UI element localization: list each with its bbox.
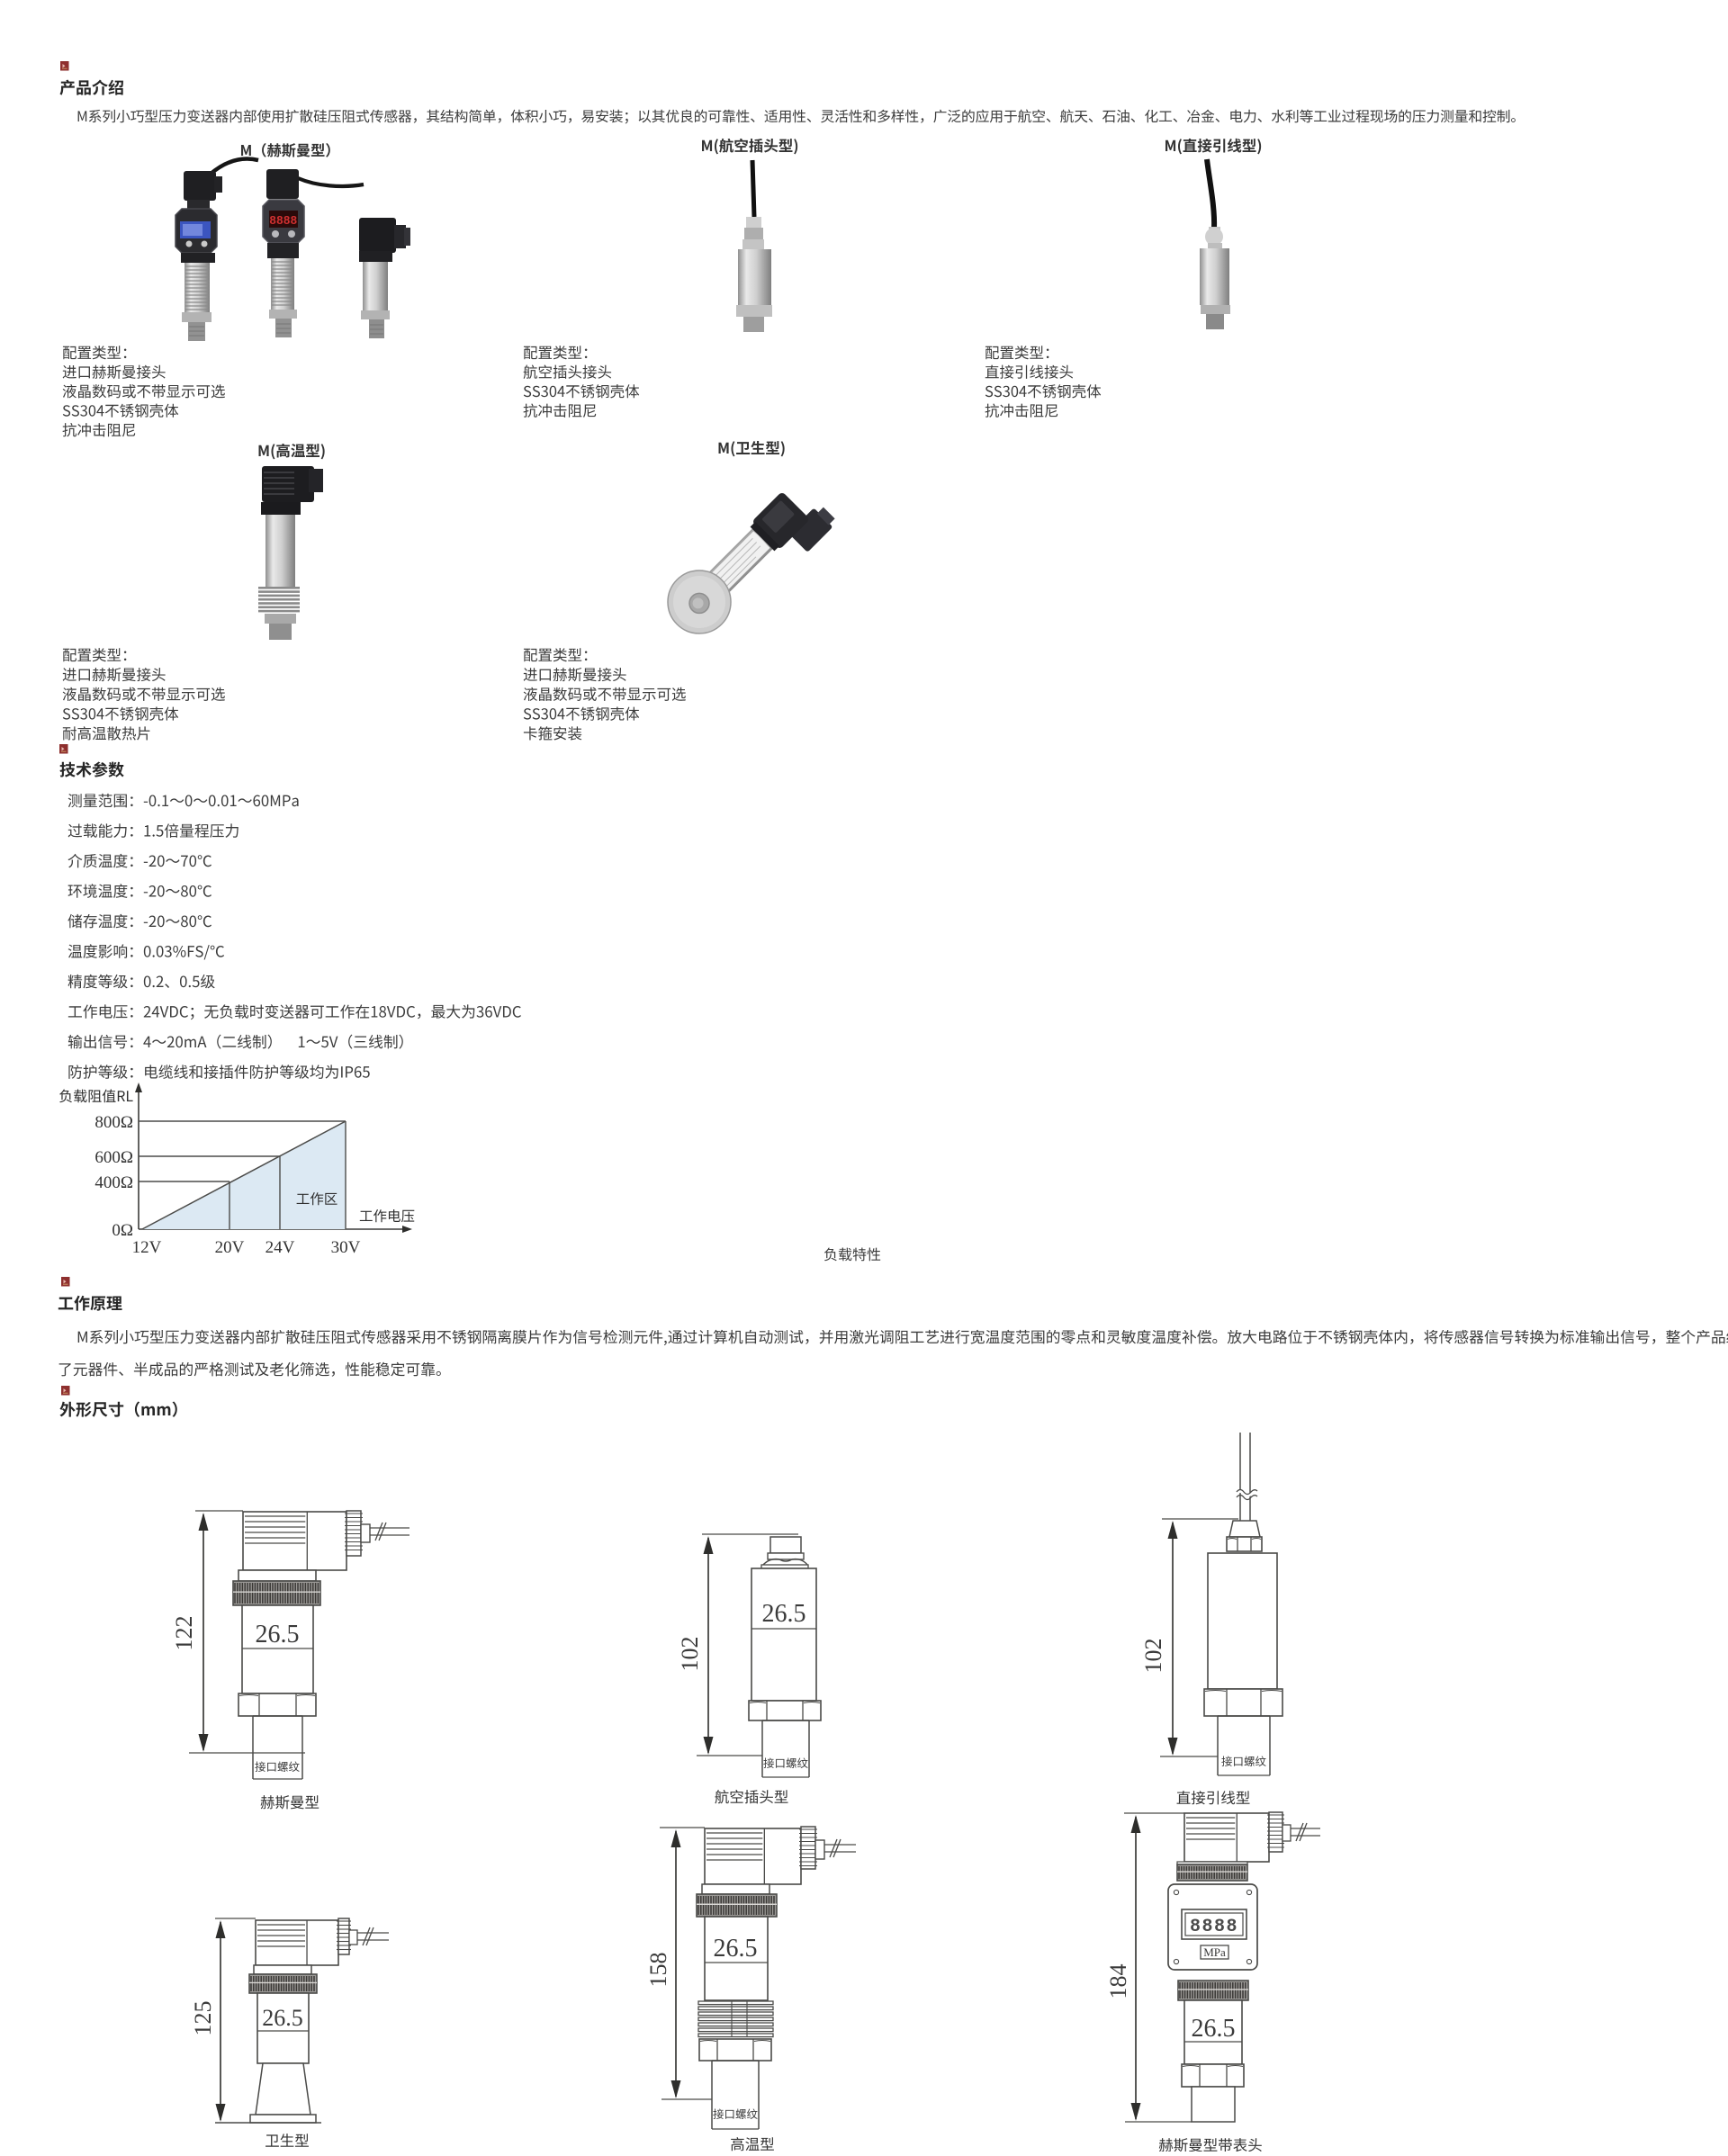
svg-text:102: 102	[677, 1637, 703, 1672]
svg-text:26.5: 26.5	[714, 1935, 758, 1963]
svg-text:26.5: 26.5	[262, 2005, 303, 2031]
svg-text:30V: 30V	[331, 1238, 361, 1257]
svg-text:158: 158	[645, 1953, 671, 1988]
svg-text:12V: 12V	[132, 1238, 162, 1257]
svg-text:26.5: 26.5	[1192, 2015, 1236, 2043]
svg-text:102: 102	[1140, 1639, 1166, 1674]
svg-text:125: 125	[190, 2001, 216, 2036]
svg-text:122: 122	[171, 1616, 197, 1651]
svg-text:600Ω: 600Ω	[94, 1148, 133, 1167]
svg-text:MPa: MPa	[1203, 1945, 1226, 1959]
svg-text:26.5: 26.5	[762, 1600, 806, 1628]
svg-text:20V: 20V	[215, 1238, 245, 1257]
svg-text:8888: 8888	[270, 213, 298, 227]
svg-text:0Ω: 0Ω	[112, 1221, 133, 1240]
svg-text:800Ω: 800Ω	[94, 1113, 133, 1132]
svg-text:8888: 8888	[1190, 1917, 1238, 1937]
svg-text:400Ω: 400Ω	[94, 1173, 133, 1192]
svg-text:184: 184	[1105, 1964, 1131, 1999]
svg-text:26.5: 26.5	[256, 1621, 300, 1648]
svg-text:24V: 24V	[265, 1238, 295, 1257]
